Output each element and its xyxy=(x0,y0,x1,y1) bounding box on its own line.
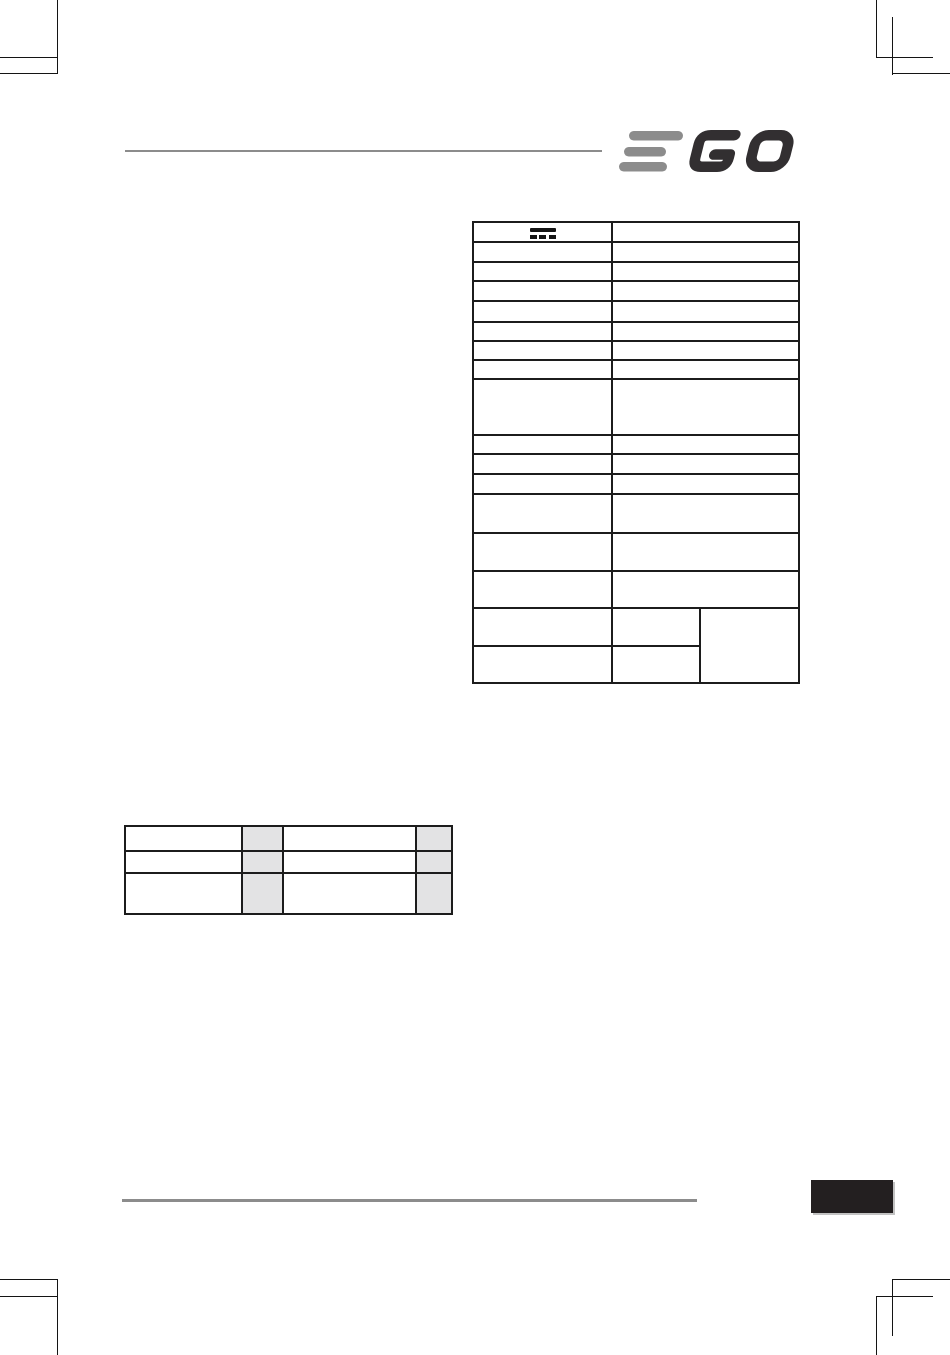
manual-page xyxy=(0,0,950,1355)
spec-cell xyxy=(473,242,612,262)
spec-row xyxy=(473,262,799,281)
spec-cell xyxy=(473,379,612,435)
ego-logo xyxy=(612,112,808,176)
spec-row xyxy=(473,322,799,341)
spec-cell xyxy=(473,262,612,281)
measurement-cell xyxy=(125,826,242,851)
spec-cell xyxy=(612,281,799,301)
spec-table xyxy=(472,221,800,684)
spec-cell xyxy=(612,533,799,571)
spec-row xyxy=(473,341,799,360)
spec-cell xyxy=(473,341,612,360)
crop-mark-bottom-left-h2 xyxy=(0,1296,58,1297)
spec-cell xyxy=(612,571,799,608)
measurement-cell xyxy=(416,873,452,914)
spec-row xyxy=(473,494,799,533)
measurement-row xyxy=(125,873,452,914)
spec-cell xyxy=(612,341,799,360)
measurement-cell xyxy=(242,873,283,914)
spec-cell xyxy=(612,360,799,379)
spec-row xyxy=(473,533,799,571)
spec-cell xyxy=(473,494,612,533)
spec-merged-cell xyxy=(700,608,799,683)
spec-row xyxy=(473,379,799,435)
measurement-cell xyxy=(242,826,283,851)
spec-row xyxy=(473,281,799,301)
crop-mark-bottom-right-h1 xyxy=(892,1279,950,1280)
spec-header-value-cell xyxy=(612,222,799,242)
spec-row xyxy=(473,608,799,646)
spec-row xyxy=(473,242,799,262)
spec-cell xyxy=(473,281,612,301)
page-number-box xyxy=(811,1180,893,1213)
measurement-table xyxy=(124,825,453,915)
spec-cell xyxy=(612,454,799,474)
measurement-cell xyxy=(125,873,242,914)
spec-header-symbol-cell xyxy=(473,222,612,242)
spec-cell xyxy=(612,474,799,494)
spec-cell xyxy=(473,571,612,608)
crop-mark-bottom-left-h1 xyxy=(0,1279,58,1280)
crop-mark-top-left-v xyxy=(57,0,58,74)
spec-cell xyxy=(473,322,612,341)
crop-mark-top-right-h1 xyxy=(876,57,933,58)
spec-row xyxy=(473,360,799,379)
measurement-cell xyxy=(283,826,416,851)
spec-row xyxy=(473,301,799,322)
measurement-row xyxy=(125,826,452,851)
spec-row xyxy=(473,474,799,494)
spec-cell xyxy=(473,454,612,474)
crop-mark-bottom-right-h2 xyxy=(876,1296,933,1297)
spec-row xyxy=(473,222,799,242)
spec-cell xyxy=(473,608,612,646)
spec-cell xyxy=(612,494,799,533)
spec-row xyxy=(473,454,799,474)
logo-letter-o xyxy=(749,135,790,167)
crop-mark-top-right-v2 xyxy=(892,17,893,75)
measurement-cell xyxy=(283,873,416,914)
logo-letter-g xyxy=(693,135,735,167)
crop-mark-top-right-v1 xyxy=(876,0,877,58)
spec-cell xyxy=(612,262,799,281)
crop-mark-bottom-left-v xyxy=(57,1279,58,1355)
spec-cell xyxy=(612,646,700,683)
measurement-row xyxy=(125,851,452,873)
spec-cell xyxy=(612,301,799,322)
measurement-cell xyxy=(125,851,242,873)
spec-row xyxy=(473,435,799,454)
measurement-cell xyxy=(416,851,452,873)
measurement-cell xyxy=(283,851,416,873)
crop-mark-top-right-h2 xyxy=(892,73,950,74)
spec-cell xyxy=(612,608,700,646)
spec-cell xyxy=(473,474,612,494)
spec-cell xyxy=(473,435,612,454)
crop-mark-top-left-h2 xyxy=(0,73,58,74)
footer-rule xyxy=(122,1199,697,1202)
crop-mark-bottom-right-v1 xyxy=(892,1279,893,1336)
spec-cell xyxy=(612,379,799,435)
crop-mark-bottom-right-v2 xyxy=(876,1296,877,1355)
spec-cell xyxy=(473,360,612,379)
spec-cell xyxy=(473,301,612,322)
spec-cell xyxy=(612,242,799,262)
spec-cell xyxy=(612,435,799,454)
measurement-cell xyxy=(416,826,452,851)
header-rule xyxy=(125,150,602,152)
spec-cell xyxy=(612,322,799,341)
direct-current-icon xyxy=(530,228,556,239)
logo-e-bars xyxy=(619,131,683,172)
spec-cell xyxy=(473,646,612,683)
crop-mark-top-left-h1 xyxy=(0,57,58,58)
spec-row xyxy=(473,571,799,608)
measurement-cell xyxy=(242,851,283,873)
spec-cell xyxy=(473,533,612,571)
